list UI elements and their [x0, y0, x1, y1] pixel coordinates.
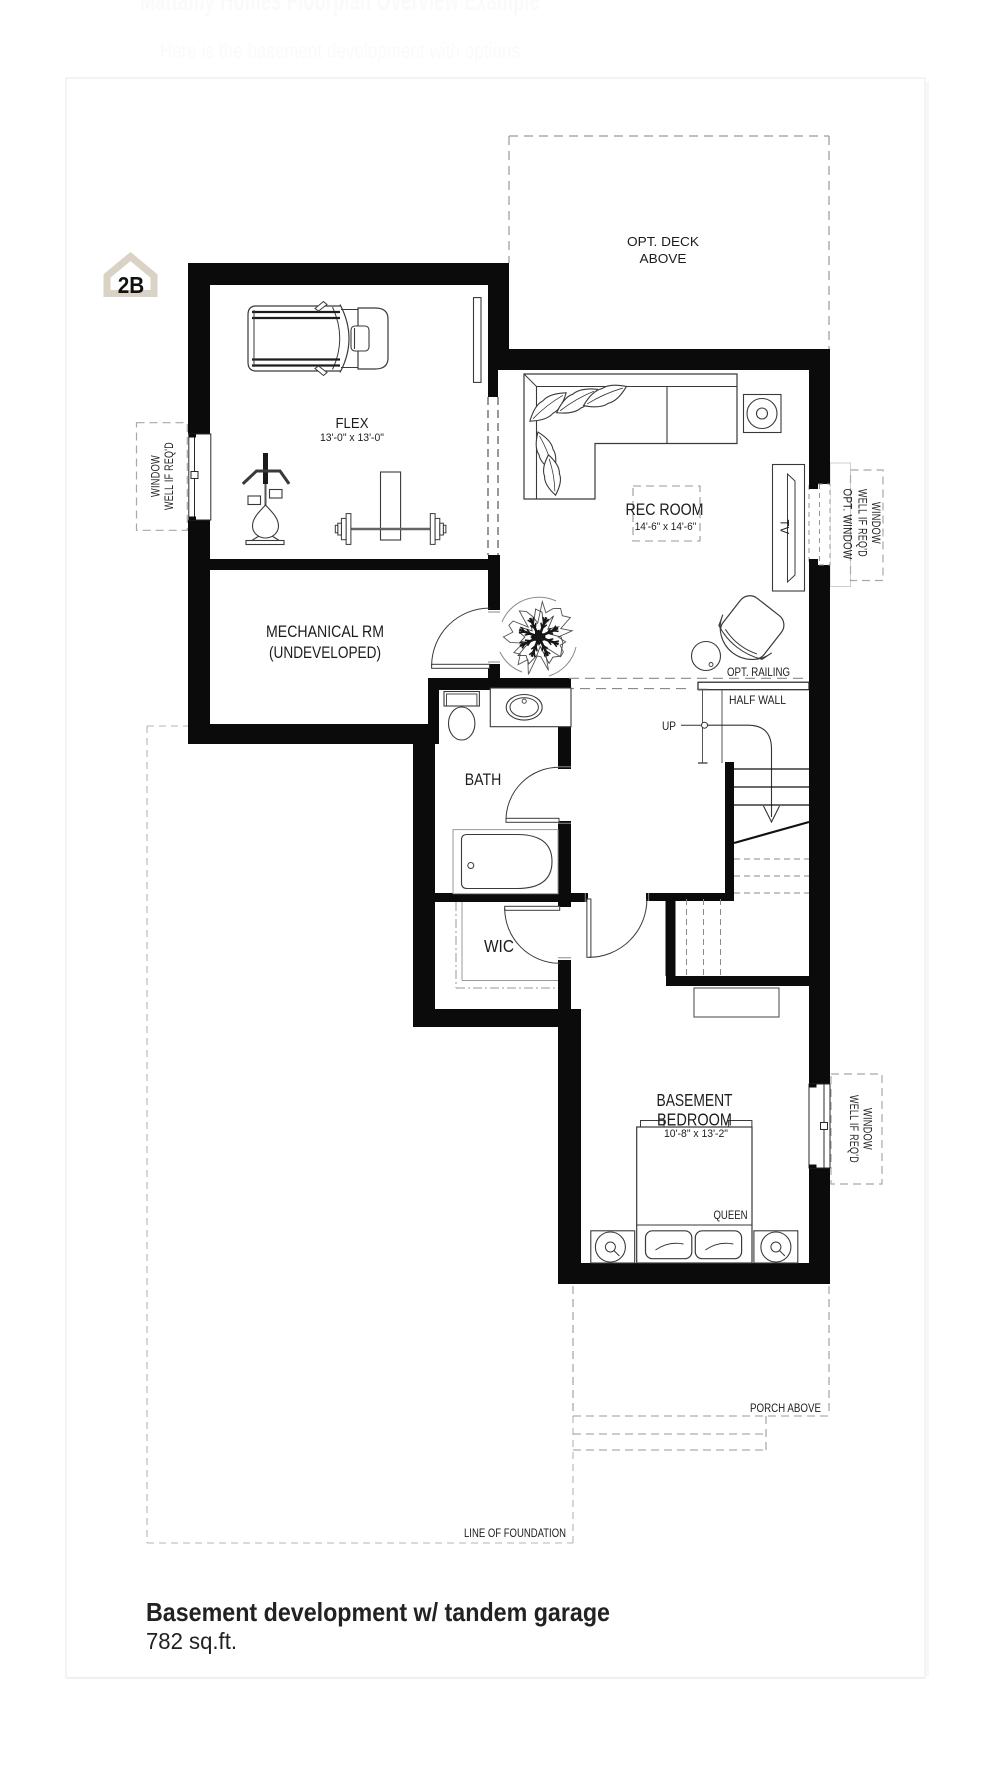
svg-text:782 sq.ft.: 782 sq.ft.: [146, 1628, 237, 1654]
svg-text:WINDOW: WINDOW: [149, 455, 163, 497]
svg-text:WINDOW: WINDOW: [861, 1108, 875, 1150]
svg-text:(UNDEVELOPED): (UNDEVELOPED): [269, 643, 381, 662]
svg-text:BASEMENT: BASEMENT: [657, 1090, 733, 1110]
svg-text:PORCH ABOVE: PORCH ABOVE: [750, 1401, 821, 1415]
svg-text:OPT. WINDOW: OPT. WINDOW: [841, 489, 855, 560]
svg-text:REC ROOM: REC ROOM: [626, 501, 704, 519]
svg-text:MECHANICAL RM: MECHANICAL RM: [266, 622, 384, 641]
svg-text:WELL IF REQ'D: WELL IF REQ'D: [856, 489, 870, 557]
svg-text:QUEEN: QUEEN: [714, 1208, 748, 1222]
svg-text:HALF WALL: HALF WALL: [729, 693, 786, 707]
svg-text:WELL IF REQ'D: WELL IF REQ'D: [847, 1095, 861, 1163]
svg-text:Basement development w/ tandem: Basement development w/ tandem garage: [146, 1597, 610, 1627]
svg-text:10'-8" x 13'-2": 10'-8" x 13'-2": [664, 1128, 728, 1140]
svg-text:WIC: WIC: [484, 936, 514, 956]
svg-text:WINDOW: WINDOW: [869, 502, 883, 544]
svg-text:LINE OF FOUNDATION: LINE OF FOUNDATION: [464, 1526, 566, 1540]
svg-text:Mattamy Homes Floorplan Overvi: Mattamy Homes Floorplan Overview Example: [140, 0, 540, 17]
svg-text:TV: TV: [778, 520, 790, 535]
svg-text:OPT. DECK: OPT. DECK: [627, 234, 699, 249]
svg-text:WELL IF REQ'D: WELL IF REQ'D: [162, 442, 176, 510]
svg-text:13'-0" x 13'-0": 13'-0" x 13'-0": [320, 432, 384, 444]
svg-text:FLEX: FLEX: [336, 415, 369, 432]
svg-text:Here is the basement developme: Here is the basement development with op…: [160, 40, 520, 63]
svg-text:BATH: BATH: [465, 771, 502, 789]
svg-text:BEDROOM: BEDROOM: [657, 1110, 732, 1130]
svg-text:OPT. RAILING: OPT. RAILING: [727, 665, 790, 679]
svg-text:14'-6" x 14'-6": 14'-6" x 14'-6": [635, 521, 697, 533]
svg-text:2B: 2B: [118, 272, 145, 298]
svg-text:ABOVE: ABOVE: [640, 251, 687, 266]
svg-text:UP: UP: [662, 719, 676, 733]
